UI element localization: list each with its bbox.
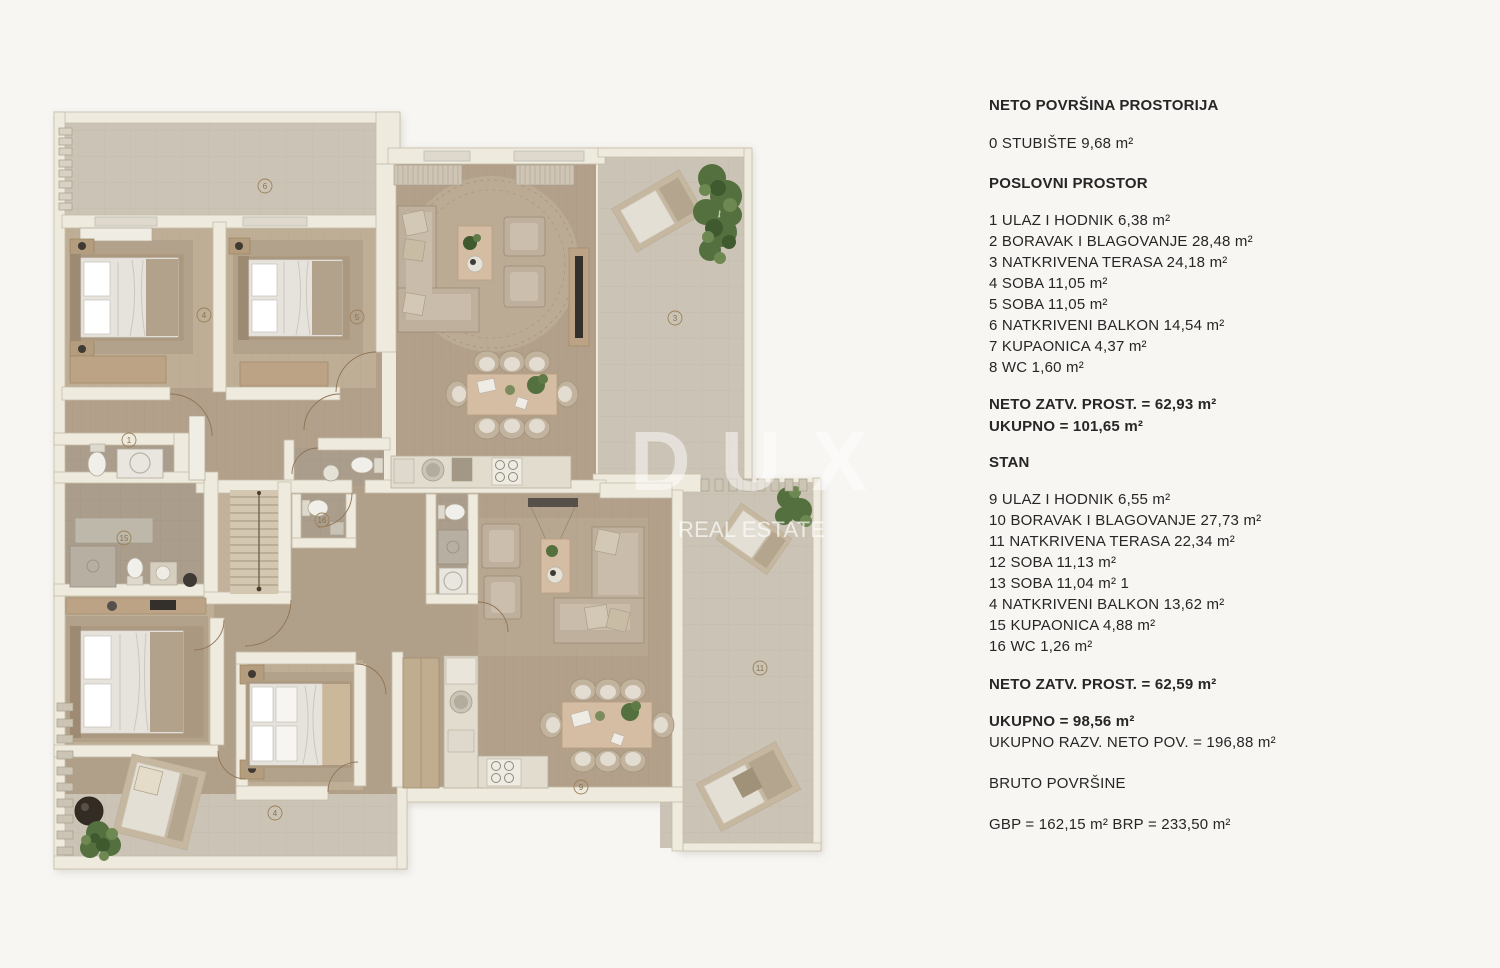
svg-text:DUX: DUX: [630, 414, 897, 508]
svg-text:4: 4: [202, 311, 207, 320]
svg-text:11: 11: [756, 664, 765, 673]
svg-text:15: 15: [120, 534, 129, 543]
svg-text:REAL ESTATE: REAL ESTATE: [678, 517, 825, 542]
svg-text:9: 9: [579, 783, 584, 792]
svg-text:6: 6: [263, 182, 268, 191]
svg-text:5: 5: [355, 313, 360, 322]
svg-text:1: 1: [127, 436, 132, 445]
svg-text:4: 4: [273, 809, 278, 818]
svg-text:3: 3: [673, 314, 678, 323]
svg-text:16: 16: [318, 516, 327, 525]
